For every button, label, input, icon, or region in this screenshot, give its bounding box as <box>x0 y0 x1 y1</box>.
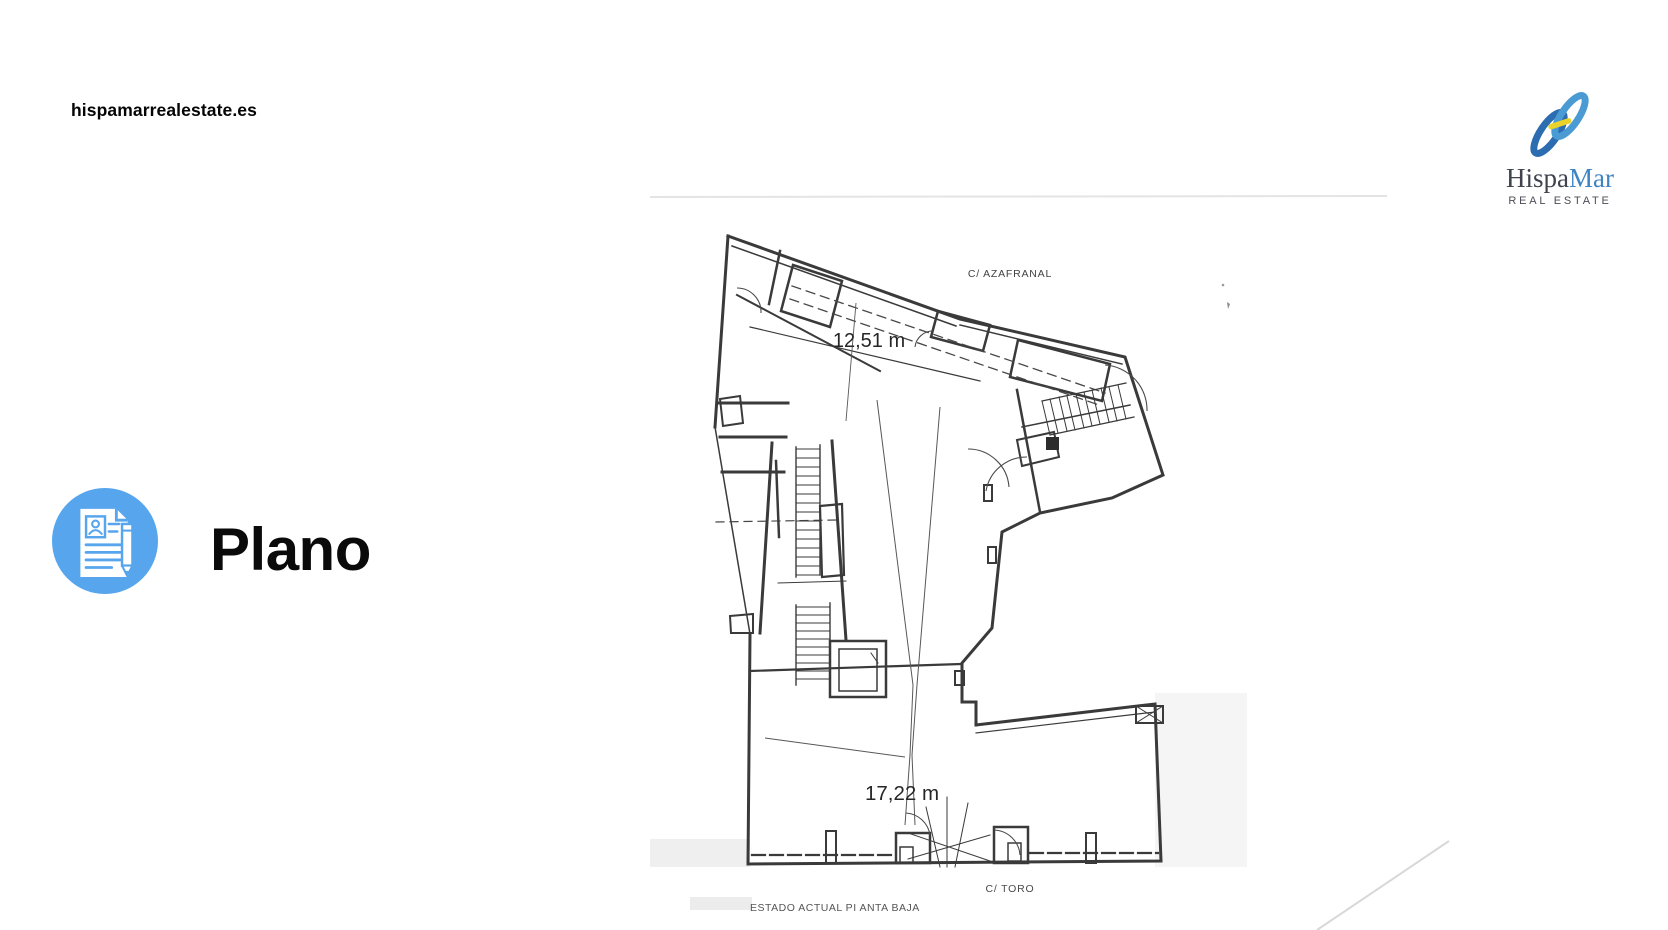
scan-speck <box>1227 302 1230 309</box>
plan-walls <box>715 236 1163 867</box>
dimension-top: 12,51 m <box>833 330 905 352</box>
scan-shading-caption <box>690 897 752 910</box>
street-label-toro: C/ TORO <box>986 883 1035 895</box>
website-url: hispamarrealestate.es <box>71 100 257 121</box>
logo-h-icon <box>1525 88 1595 162</box>
document-pencil-icon <box>52 488 158 594</box>
logo-text-hispa: Hispa <box>1506 163 1569 193</box>
brochure-slide: hispamarrealestate.es HispaMar REAL ESTA… <box>0 0 1668 930</box>
company-logo: HispaMar REAL ESTATE <box>1492 88 1628 207</box>
dimension-bottom: 17,22 m <box>865 782 939 805</box>
scan-shading-bottom-left <box>650 839 750 867</box>
scan-speck <box>1222 284 1225 287</box>
shaft-filled-block <box>1046 437 1059 450</box>
page-title: Plano <box>210 520 371 580</box>
logo-text-mar: Mar <box>1569 163 1614 193</box>
scan-page-top-edge <box>650 196 1387 197</box>
logo-tagline: REAL ESTATE <box>1492 195 1628 207</box>
plan-caption: ESTADO ACTUAL PI ANTA BAJA <box>750 902 920 914</box>
courtyard-lines <box>765 303 940 825</box>
logo-wordmark: HispaMar <box>1492 164 1628 192</box>
street-label-azafranal: C/ AZAFRANAL <box>968 268 1052 280</box>
diagonal-decoration-line <box>1317 841 1449 930</box>
floor-plan: C/ AZAFRANAL 12,51 m 17,22 m C/ TORO EST… <box>650 185 1470 930</box>
door-arcs <box>737 288 1147 855</box>
scan-shading-right <box>1155 693 1247 867</box>
